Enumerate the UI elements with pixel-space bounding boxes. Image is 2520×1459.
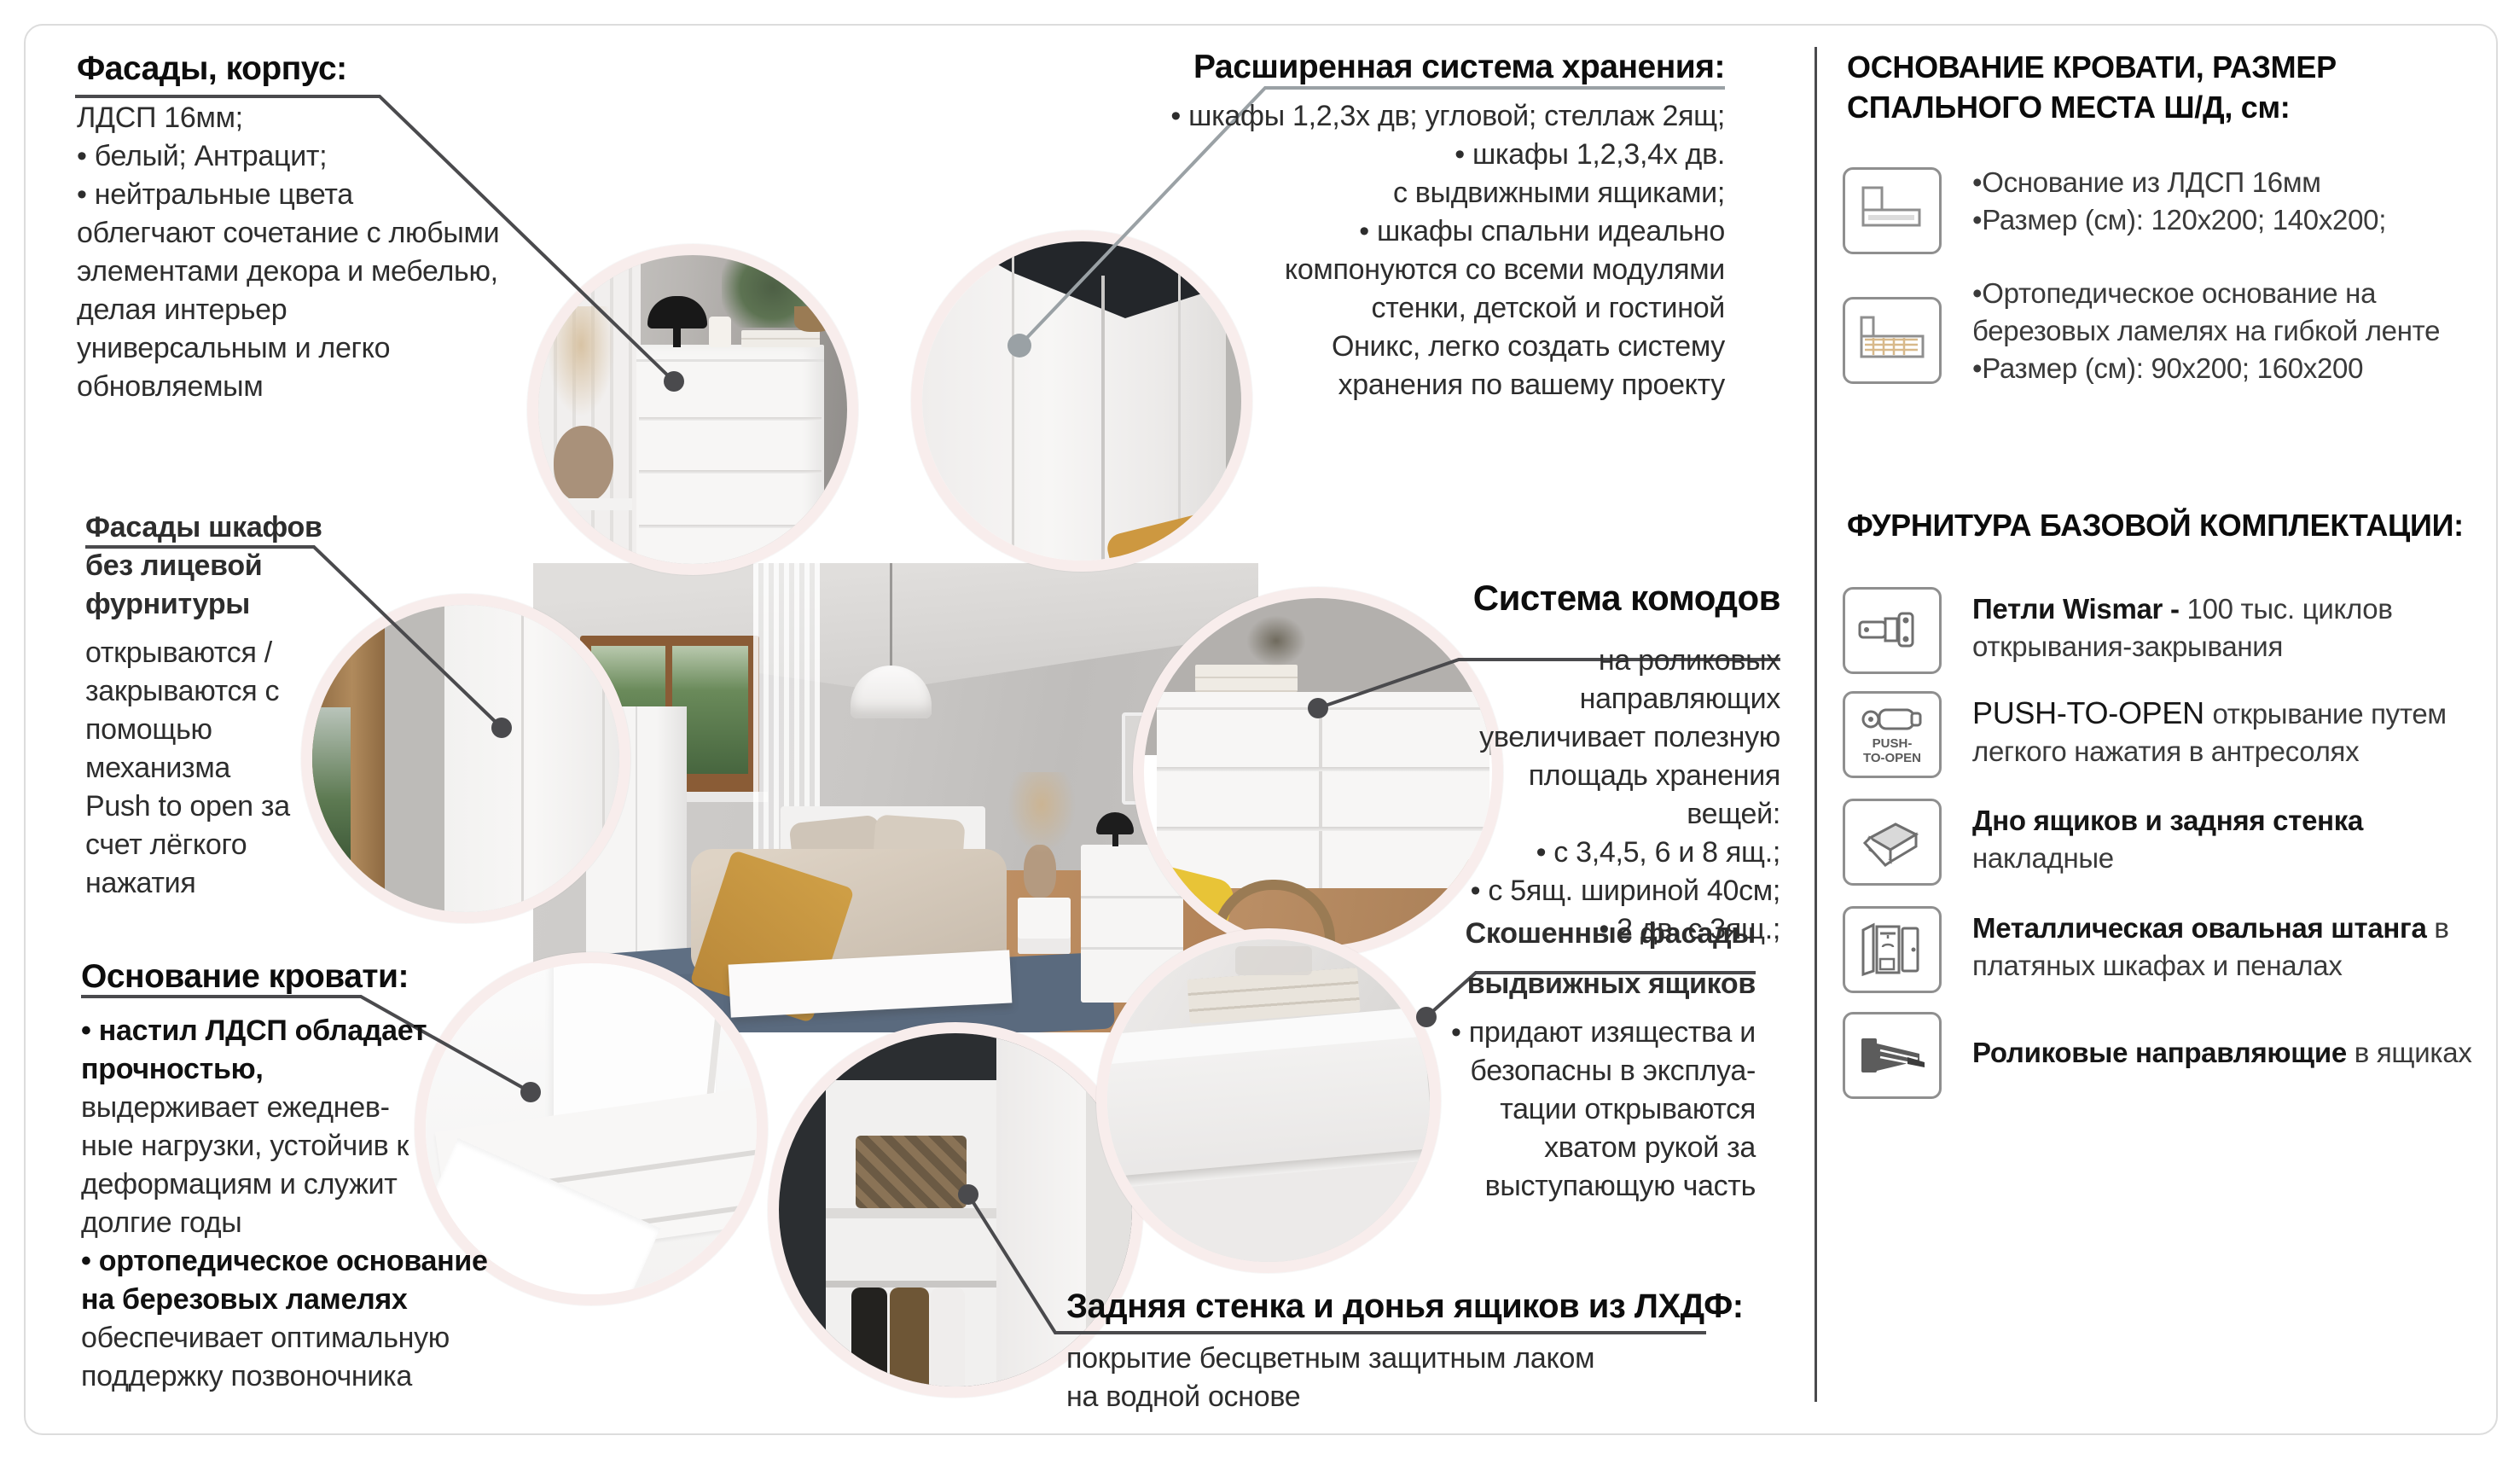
annotation-body: • шкафы 1,2,3х дв; угловой; стеллаж 2ящ;… <box>1128 97 1725 404</box>
annotation-wardrobe-facades: Фасады шкафов без лицевой фурнитуры откр… <box>85 509 444 903</box>
text-line: нажатия <box>85 864 444 903</box>
annotation-body: открываются / закрываются с помощью меха… <box>85 634 444 903</box>
text-line: компонуются со всеми модулями <box>1128 251 1725 289</box>
annotation-title: Фасады шкафов без лицевой фурнитуры <box>85 509 444 624</box>
annotation-facades-corpus: Фасады, корпус: ЛДСП 16мм; • белый; Антр… <box>77 49 537 406</box>
text-line: делая интерьер <box>77 291 537 329</box>
text-line: тации открываются <box>1380 1090 1756 1129</box>
title-line: Скошенные фасады <box>1380 915 1756 953</box>
title-line: Фасады шкафов <box>85 509 444 547</box>
text-line: Push to open за <box>85 788 444 826</box>
text-line: увеличивает полезную <box>1396 718 1780 757</box>
text-line: выступающую часть <box>1380 1167 1756 1206</box>
text-line: площадь хранения <box>1396 757 1780 795</box>
annotation-back-wall: Задняя стенка и донья ящиков из ЛХДФ: по… <box>1066 1287 1749 1416</box>
text-line: • ортопедическое основание <box>81 1242 525 1281</box>
text-line: выдерживает ежеднев- <box>81 1089 525 1127</box>
text-line: • с 5ящ. шириной 40см; <box>1396 872 1780 910</box>
text-line: ЛДСП 16мм; <box>77 99 537 137</box>
text-line: деформациям и служит <box>81 1165 525 1204</box>
text-line: прочностью, <box>81 1050 525 1089</box>
text-line: на роликовых <box>1396 642 1780 680</box>
annotation-title: Задняя стенка и донья ящиков из ЛХДФ: <box>1066 1287 1749 1326</box>
text-line: вещей: <box>1396 795 1780 834</box>
leader-dot-wardrobe-facades <box>491 718 512 738</box>
text-line: • шкафы спальни идеально <box>1128 212 1725 251</box>
text-line: • с 3,4,5, 6 и 8 ящ.; <box>1396 834 1780 872</box>
annotation-body: покрытие бесцветным защитным лаком на во… <box>1066 1340 1749 1416</box>
annotation-title: Система комодов <box>1396 578 1780 618</box>
annotation-title: Фасады, корпус: <box>77 49 537 89</box>
text-line: хранения по вашему проекту <box>1128 366 1725 404</box>
text-line: • шкафы 1,2,3х дв; угловой; стеллаж 2ящ; <box>1128 97 1725 136</box>
annotation-title: Основание кровати: <box>81 957 525 997</box>
text-line: помощью <box>85 711 444 749</box>
text-line: • придают изящества и <box>1380 1014 1756 1052</box>
text-line: обеспечивает оптимальную <box>81 1319 525 1357</box>
annotation-body: • настил ЛДСП обладает прочностью, выдер… <box>81 1012 525 1396</box>
text-line: • шкафы 1,2,3,4х дв. <box>1128 136 1725 174</box>
text-line: • белый; Антрацит; <box>77 137 537 176</box>
leader-dot-storage-system <box>1007 334 1031 357</box>
text-line: открываются / <box>85 634 444 672</box>
text-line: счет лёгкого <box>85 826 444 864</box>
annotation-title: Расширенная система хранения: <box>1128 48 1725 87</box>
leader-dot-back-wall <box>958 1184 978 1205</box>
text-line: хватом рукой за <box>1380 1129 1756 1167</box>
text-line: с выдвижными ящиками; <box>1128 174 1725 212</box>
text-line: долгие годы <box>81 1204 525 1242</box>
title-line: выдвижных ящиков <box>1380 965 1756 1003</box>
text-line: ные нагрузки, устойчив к <box>81 1127 525 1165</box>
text-line: универсальным и легко <box>77 329 537 368</box>
annotation-slanted-facades: Скошенные фасады выдвижных ящиков • прид… <box>1380 915 1756 1206</box>
text-line: закрываются с <box>85 672 444 711</box>
text-line: • настил ЛДСП обладает <box>81 1012 525 1050</box>
text-line: облегчают сочетание с любыми <box>77 214 537 253</box>
text-line: на березовых ламелях <box>81 1281 525 1319</box>
product-infographic-page: { "colors": { "leader_dark": "#4a4a4d", … <box>0 0 2520 1459</box>
annotation-bed-base: Основание кровати: • настил ЛДСП обладае… <box>81 957 525 1396</box>
text-line: механизма <box>85 749 444 788</box>
leader-dot-drawer-system <box>1308 698 1328 718</box>
annotation-body: на роликовых направляющих увеличивает по… <box>1396 642 1780 949</box>
text-line: • нейтральные цвета <box>77 176 537 214</box>
text-line: Оникс, легко создать систему <box>1128 328 1725 366</box>
annotation-storage-system: Расширенная система хранения: • шкафы 1,… <box>1128 48 1725 404</box>
text-line: поддержку позвоночника <box>81 1357 525 1396</box>
text-line: покрытие бесцветным защитным лаком <box>1066 1340 1749 1378</box>
leader-dot-facades-corpus <box>664 371 684 392</box>
text-line: на водной основе <box>1066 1378 1749 1416</box>
text-line: направляющих <box>1396 680 1780 718</box>
annotation-title: Скошенные фасады выдвижных ящиков <box>1380 915 1756 1003</box>
text-line: стенки, детской и гостиной <box>1128 289 1725 328</box>
title-line: без лицевой <box>85 547 444 585</box>
annotation-body: ЛДСП 16мм; • белый; Антрацит; • нейтраль… <box>77 99 537 406</box>
text-line: элементами декора и мебелью, <box>77 253 537 291</box>
text-line: безопасны в эксплуа- <box>1380 1052 1756 1090</box>
title-line: фурнитуры <box>85 585 444 624</box>
annotation-body: • придают изящества и безопасны в эксплу… <box>1380 1014 1756 1206</box>
text-line: обновляемым <box>77 368 537 406</box>
annotation-drawer-system: Система комодов на роликовых направляющи… <box>1396 578 1780 949</box>
